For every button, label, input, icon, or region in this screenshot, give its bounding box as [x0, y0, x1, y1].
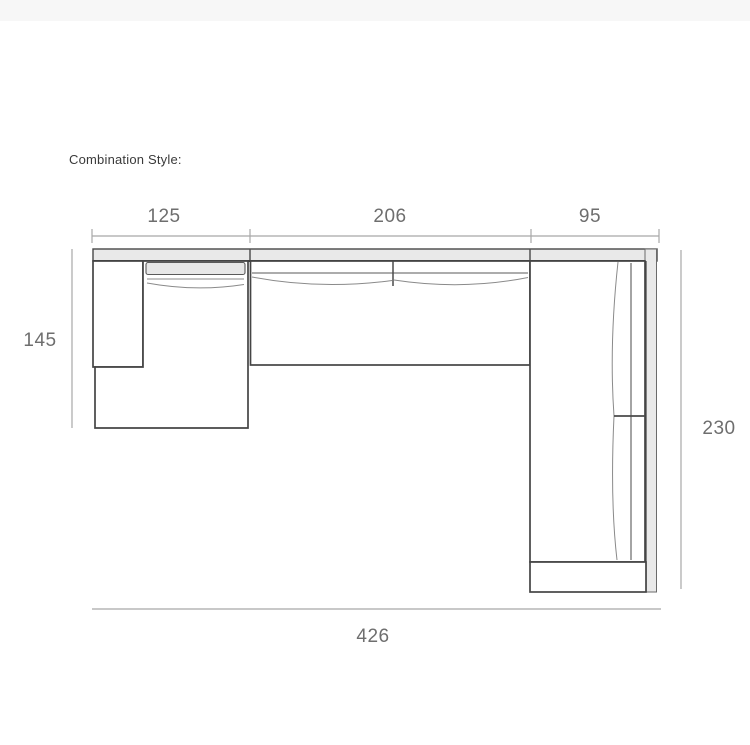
middle-seat-section	[251, 261, 531, 365]
back-rail	[93, 249, 657, 261]
dim-label-206: 206	[373, 206, 406, 227]
right-seat-section	[530, 261, 645, 562]
right-back-panel	[645, 249, 657, 592]
dim-label-95: 95	[579, 206, 601, 227]
left-armrest	[93, 261, 143, 367]
dim-label-145: 145	[23, 330, 56, 351]
sofa-body	[93, 249, 657, 592]
product-detail-screenshot: Combination Style:	[0, 0, 750, 745]
sofa-dimension-drawing: 125 206 95 145 230 426	[0, 0, 750, 745]
dim-label-426: 426	[356, 626, 389, 647]
top-dimension-line	[92, 229, 659, 243]
chaise-back-cushion	[146, 263, 245, 275]
bottom-armrest	[530, 562, 646, 592]
dim-label-125: 125	[147, 206, 180, 227]
dim-label-230: 230	[702, 418, 735, 439]
